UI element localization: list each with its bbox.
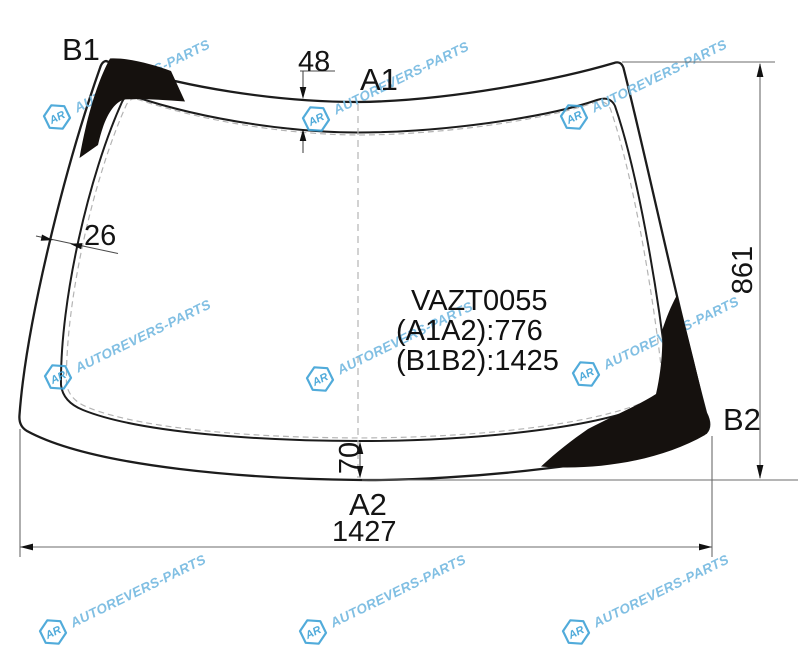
svg-text:AR: AR (303, 624, 323, 642)
windshield-diagram: AR AUTOREVERS-PARTS AR AUTOREVERS-PARTS … (0, 0, 800, 600)
part-info: VAZT0055 (A1A2):776 (B1B2):1425 (396, 286, 559, 376)
dim-861-height: 861 (728, 239, 758, 301)
part-dim-b1b2: (B1B2):1425 (396, 346, 559, 376)
ar-logo-icon: AR (556, 612, 596, 652)
corner-label-b2: B2 (723, 404, 761, 437)
arrow-right-icon (41, 235, 53, 241)
arrow-up-icon (757, 63, 764, 77)
svg-text:AR: AR (43, 624, 63, 642)
dim-70-bottom-strip: 70 (335, 437, 363, 479)
corner-label-a1: A1 (360, 64, 398, 97)
arrow-left-icon (20, 544, 33, 551)
svg-text:AR: AR (566, 624, 586, 642)
b2-tint-band-mark (541, 295, 710, 468)
arrow-down-icon (757, 465, 764, 479)
part-number: VAZT0055 (396, 286, 559, 316)
dim-1427-width: 1427 (332, 517, 397, 547)
dim-26-left-strip: 26 (84, 221, 116, 251)
arrow-right-icon (699, 544, 712, 551)
arrow-up-icon (300, 129, 307, 141)
arrow-left-icon (70, 243, 82, 249)
part-dim-a1a2: (A1A2):776 (396, 316, 559, 346)
ar-logo-icon: AR (293, 612, 333, 652)
dim-48-top-strip: 48 (298, 47, 330, 77)
arrow-down-icon (300, 87, 307, 99)
ar-logo-icon: AR (33, 612, 73, 652)
corner-label-b1: B1 (62, 34, 100, 67)
b1-tint-band-mark (80, 58, 186, 158)
